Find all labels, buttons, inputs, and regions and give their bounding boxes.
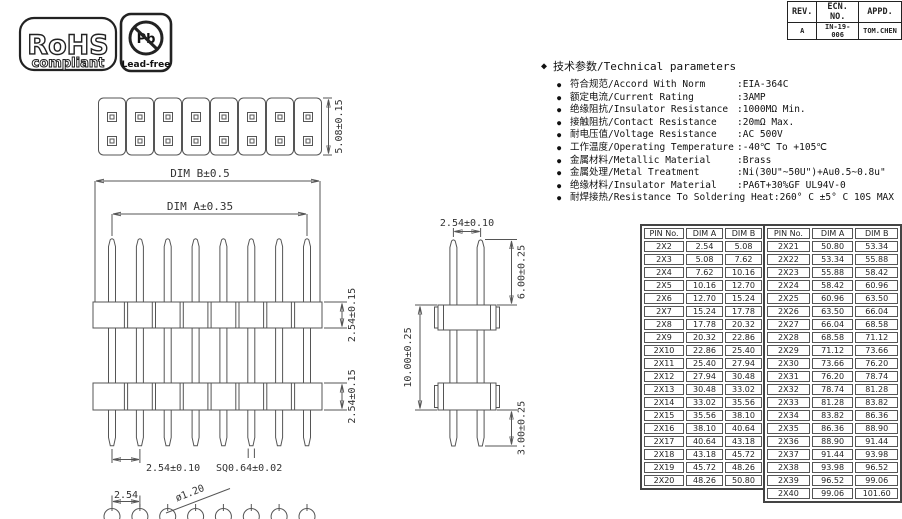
table-row: 2X47.6210.16 [644,267,762,278]
table-row: 2X35.087.62 [644,254,762,265]
table-row: 2X510.1612.70 [644,280,762,291]
dim-a: DIM A±0.35 [112,200,307,236]
dim-b-label: DIM B±0.5 [170,167,230,180]
dim-a-label: DIM A±0.35 [167,200,233,213]
tech-param-value: :1000MΩ Min. [737,104,806,117]
dim-pin-pitch: 2.54±0.10 [146,463,200,474]
table-row: 2X1022.8625.40 [644,345,762,356]
pin-no-header: PIN No. [767,228,810,239]
table-row: 2X1433.0235.56 [644,397,762,408]
table-row: 2X920.3222.86 [644,332,762,343]
table-row: 2X4099.06101.60 [767,488,898,499]
dim-top-length: 6.00±0.25 [517,245,528,299]
datasheet-page: RoHS compliant Pb Lead-free REV. ECN. NO… [0,0,902,519]
pin-table-right: PIN No. DIM A DIM B 2X2150.8053.342X2253… [763,224,902,503]
table-row: 2X1638.1040.64 [644,423,762,434]
table-row: 2X3073.6676.20 [767,358,898,369]
table-row: 2X2048.2650.80 [644,475,762,486]
dim-upper-insulator: 2.54±0.15 [347,288,358,342]
dim-hole-dia: ø1.20 [174,483,206,504]
table-row: 2X3996.5299.06 [767,475,898,486]
dim-b-header: DIM B [725,228,762,239]
dim-b: DIM B±0.5 [95,167,320,302]
table-row: 2X2766.0468.58 [767,319,898,330]
upper-insulator-side [438,305,496,330]
table-row: 2X1227.9430.48 [644,371,762,382]
appd-col-header: APPD. [858,2,901,23]
dim-b-header: DIM B [855,228,898,239]
revision-data-row: A IN-19-006 TOM.CHEN [788,23,902,40]
dim-a-header: DIM A [686,228,723,239]
table-row: 2X1843.1845.72 [644,449,762,460]
dim-row-spacing: 5.08±0.15 [334,99,345,153]
table-row: 2X1740.6443.18 [644,436,762,447]
tech-param-value: :20mΩ Max. [737,117,794,130]
table-row: 2X3278.7481.28 [767,384,898,395]
dim-pin-square: SQ0.64±0.02 [216,463,282,474]
ecn-col-header: ECN. NO. [817,2,859,23]
rev-value: A [788,23,817,40]
tech-param-value: :Ni(30U"~50U")+Au0.5~0.8u" [737,167,886,180]
table-row: 2X2663.5066.04 [767,306,898,317]
table-row: 2X2355.8858.42 [767,267,898,278]
revision-header-row: REV. ECN. NO. APPD. [788,2,902,23]
tech-param-value: :PA6T+30%GF UL94V-0 [737,180,846,193]
tech-param-value: :3AMP [737,92,766,105]
table-row: 2X2253.3455.88 [767,254,898,265]
technical-drawing: 5.08±0.15 DIM B±0.5 DIM A±0.35 2.54±0.15 [0,0,640,519]
footprint: 2.54 ø1.20 [104,483,315,519]
rev-col-header: REV. [788,2,817,23]
table-row: 2X3483.8286.36 [767,410,898,421]
table-row: 2X612.7015.24 [644,293,762,304]
table-row: 2X715.2417.78 [644,306,762,317]
table-row: 2X3381.2883.82 [767,397,898,408]
tech-param-value: :AC 500V [737,129,783,142]
pin-table-header-row: PIN No. DIM A DIM B [644,228,762,239]
table-row: 2X3791.4493.98 [767,449,898,460]
table-row: 2X3688.9091.44 [767,436,898,447]
dim-lower-insulator: 2.54±0.15 [347,369,358,423]
pin-table-header-row: PIN No. DIM A DIM B [767,228,898,239]
table-row: 2X817.7820.32 [644,319,762,330]
pin-table-left: PIN No. DIM A DIM B 2X22.545.082X35.087.… [640,224,766,490]
dim-body-span: 10.00±0.25 [403,327,414,387]
table-row: 2X3893.9896.52 [767,462,898,473]
table-row: 2X3586.3688.90 [767,423,898,434]
dim-pad-pitch: 2.54 [114,490,138,501]
revision-table: REV. ECN. NO. APPD. A IN-19-006 TOM.CHEN [787,1,902,40]
table-row: 2X2150.8053.34 [767,241,898,252]
table-row: 2X3176.2078.74 [767,371,898,382]
table-row: 2X22.545.08 [644,241,762,252]
tech-param-value: :260° C ±5° C 10S MAX [774,192,894,205]
table-row: 2X1330.4833.02 [644,384,762,395]
table-row: 2X2560.9663.50 [767,293,898,304]
tech-param-value: :-40℃ To +105℃ [737,142,827,155]
table-row: 2X1945.7248.26 [644,462,762,473]
lower-insulator-side [438,383,496,410]
pin-no-header: PIN No. [644,228,684,239]
appd-value: TOM.CHEN [858,23,901,40]
tech-param-value: :Brass [737,155,771,168]
table-row: 2X2458.4260.96 [767,280,898,291]
dim-side-pin-pitch: 2.54±0.10 [440,218,494,229]
table-row: 2X2971.1273.66 [767,345,898,356]
table-row: 2X1535.5638.10 [644,410,762,421]
side-view: 2.54±0.10 6.00±0.25 10.00±0.25 3.00±0.25 [403,218,528,455]
ecn-value: IN-19-006 [817,23,859,40]
top-view: 5.08±0.15 [99,98,346,155]
dim-tail-length: 3.00±0.25 [517,401,528,455]
table-row: 2X1125.4027.94 [644,358,762,369]
front-view: 2.54±0.15 2.54±0.15 2.54±0.10 SQ0.64±0.0… [93,239,358,474]
tech-param-value: :EIA-364C [737,79,788,92]
table-row: 2X2868.5871.12 [767,332,898,343]
dim-a-header: DIM A [812,228,854,239]
